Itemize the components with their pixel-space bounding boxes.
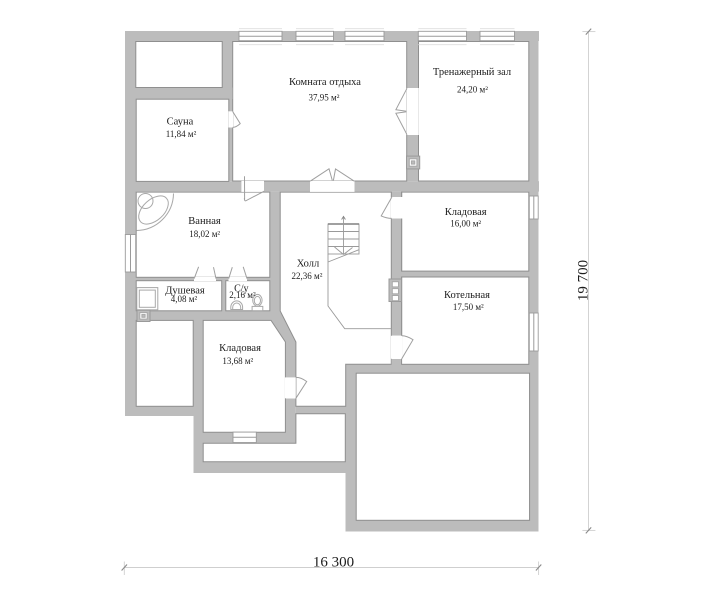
svg-text:37,95 м²: 37,95 м²: [309, 92, 340, 102]
svg-text:13,68 м²: 13,68 м²: [222, 356, 253, 366]
svg-text:11,84 м²: 11,84 м²: [166, 129, 197, 139]
svg-text:Холл: Холл: [297, 258, 320, 269]
svg-text:4,08 м²: 4,08 м²: [171, 294, 198, 304]
svg-text:Кладовая: Кладовая: [445, 207, 487, 218]
svg-text:Ванная: Ванная: [188, 216, 221, 227]
svg-text:Тренажерный зал: Тренажерный зал: [433, 67, 511, 78]
svg-text:17,50 м²: 17,50 м²: [453, 302, 484, 312]
svg-text:Кладовая: Кладовая: [219, 343, 261, 354]
svg-text:18,02 м²: 18,02 м²: [189, 229, 220, 239]
svg-text:Сауна: Сауна: [167, 117, 194, 128]
svg-text:19 700: 19 700: [576, 260, 592, 301]
svg-text:Котельная: Котельная: [444, 290, 490, 301]
svg-text:16,00 м²: 16,00 м²: [450, 218, 481, 228]
svg-text:22,36 м²: 22,36 м²: [292, 271, 323, 281]
svg-text:16 300: 16 300: [313, 555, 354, 571]
svg-text:2,16 м²: 2,16 м²: [229, 290, 256, 300]
svg-text:24,20 м²: 24,20 м²: [457, 84, 488, 94]
svg-text:Комната отдыха: Комната отдыха: [289, 77, 361, 88]
